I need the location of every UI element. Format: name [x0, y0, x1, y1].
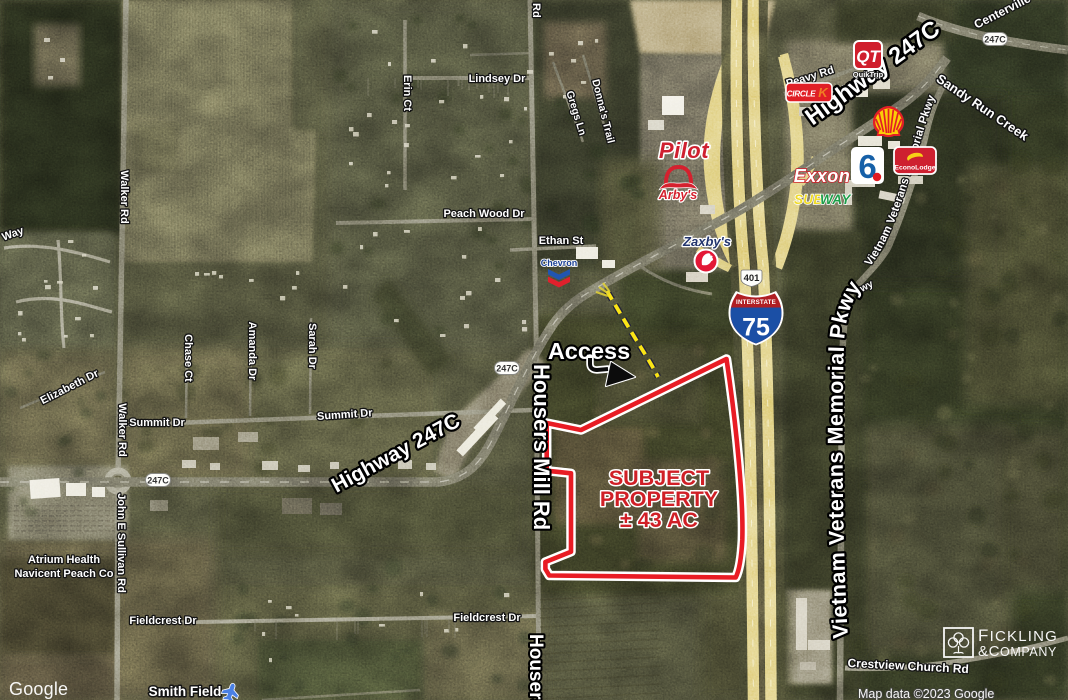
- svg-text:Walker Rd: Walker Rd: [118, 170, 130, 223]
- svg-text:QuikTrip: QuikTrip: [853, 70, 884, 79]
- svg-text:Map data ©2023 Google: Map data ©2023 Google: [858, 687, 994, 700]
- svg-text:Ethan St: Ethan St: [539, 235, 584, 247]
- svg-text:INTERSTATE: INTERSTATE: [736, 299, 776, 306]
- svg-text:247C: 247C: [147, 475, 169, 485]
- svg-text:± 43 AC: ± 43 AC: [620, 508, 698, 532]
- svg-text:SUB: SUB: [794, 192, 823, 207]
- svg-text:Chase Ct: Chase Ct: [182, 334, 194, 382]
- svg-text:Housers Mill Rd: Housers Mill Rd: [525, 634, 546, 700]
- svg-text:Navicent Peach Co: Navicent Peach Co: [14, 568, 113, 580]
- svg-text:Google: Google: [9, 679, 68, 699]
- svg-text:EconoLodge: EconoLodge: [894, 165, 935, 172]
- svg-text:Amanda Dr: Amanda Dr: [246, 322, 258, 381]
- svg-text:CIRCLE: CIRCLE: [787, 90, 817, 99]
- svg-text:Fieldcrest Dr: Fieldcrest Dr: [453, 612, 521, 624]
- svg-text:&COMPANY: &COMPANY: [978, 643, 1057, 660]
- svg-text:Peach Wood Dr: Peach Wood Dr: [443, 208, 525, 220]
- svg-text:Zaxby's: Zaxby's: [682, 234, 731, 249]
- svg-text:K: K: [818, 85, 829, 100]
- svg-text:WAY: WAY: [820, 192, 852, 207]
- svg-text:John E Sullivan Rd: John E Sullivan Rd: [115, 493, 127, 593]
- svg-text:Lindsey Dr: Lindsey Dr: [469, 73, 527, 85]
- svg-text:247C: 247C: [984, 34, 1006, 44]
- svg-text:247C: 247C: [496, 363, 518, 373]
- svg-text:QT: QT: [856, 47, 881, 66]
- svg-text:Chevron: Chevron: [541, 258, 578, 268]
- svg-text:401: 401: [744, 273, 761, 284]
- svg-text:Summit Dr: Summit Dr: [129, 417, 185, 429]
- svg-text:Arby's: Arby's: [658, 188, 697, 202]
- svg-text:Sarah Dr: Sarah Dr: [306, 323, 318, 370]
- svg-text:Smith Field: Smith Field: [149, 684, 222, 699]
- svg-text:Walker Rd: Walker Rd: [116, 403, 128, 456]
- svg-text:Housers Mill Rd: Housers Mill Rd: [529, 364, 554, 530]
- svg-text:Fieldcrest Dr: Fieldcrest Dr: [129, 615, 197, 627]
- svg-text:Atrium Health: Atrium Health: [28, 554, 100, 566]
- svg-text:Rd: Rd: [530, 3, 542, 18]
- svg-text:75: 75: [742, 314, 770, 342]
- svg-text:Pilot: Pilot: [659, 138, 710, 163]
- svg-text:Erin Ct: Erin Ct: [401, 75, 413, 111]
- svg-text:Exxon: Exxon: [794, 166, 851, 186]
